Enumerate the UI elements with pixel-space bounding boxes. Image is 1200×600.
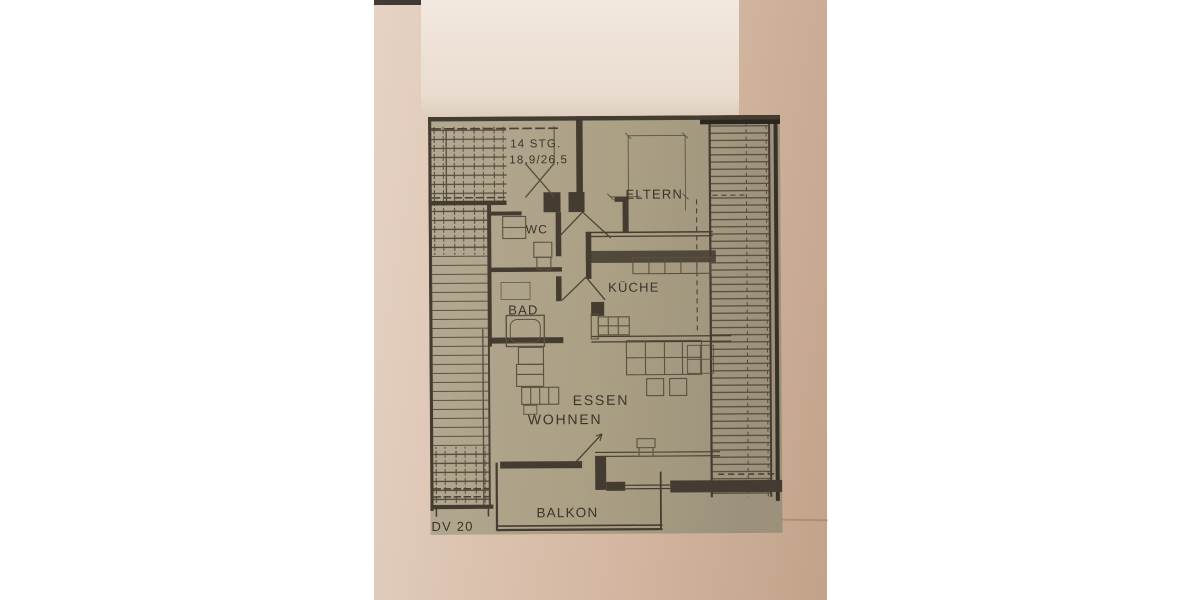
paper-photo: 14 STG. 18,9/26,5 ELTERN WC KÜCHE BAD ES… bbox=[374, 0, 827, 600]
stairs-note-line2: 18,9/26,5 bbox=[509, 154, 568, 166]
room-label-wohnen: WOHNEN bbox=[528, 411, 603, 427]
right-roof-hatch bbox=[700, 115, 782, 501]
room-label-kueche: KÜCHE bbox=[608, 280, 660, 295]
stairs-note-line1: 14 STG. bbox=[510, 138, 561, 150]
paper-crease-line bbox=[782, 519, 828, 522]
plan-sheet-blank-margin bbox=[421, 0, 739, 118]
page: { "floor_plan": { "drawing_code": "DV 20… bbox=[0, 0, 1200, 600]
room-label-essen: ESSEN bbox=[573, 392, 630, 408]
room-label-bad: BAD bbox=[508, 302, 538, 317]
room-label-balkon: BALKON bbox=[536, 505, 598, 520]
floor-plan: 14 STG. 18,9/26,5 ELTERN WC KÜCHE BAD ES… bbox=[428, 115, 783, 535]
room-label-eltern: ELTERN bbox=[625, 186, 683, 201]
floor-plan-drawing: 14 STG. 18,9/26,5 ELTERN WC KÜCHE BAD ES… bbox=[428, 115, 783, 535]
drawing-code: DV 20 bbox=[431, 519, 473, 534]
room-label-wc: WC bbox=[526, 222, 548, 236]
